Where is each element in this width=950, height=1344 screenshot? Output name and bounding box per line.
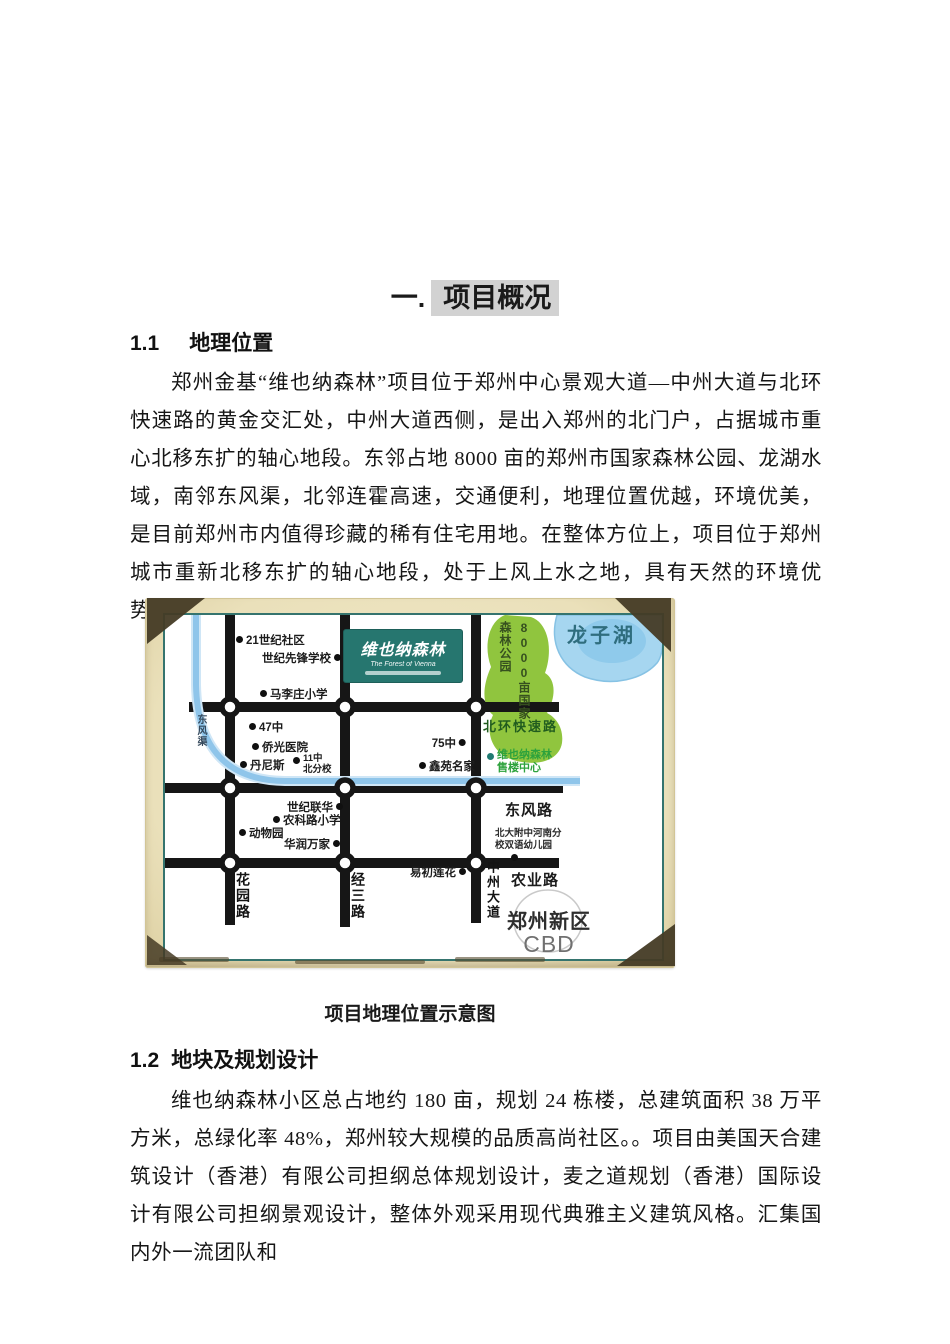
sales-center-label: 维也纳森林 售楼中心 bbox=[497, 749, 552, 774]
marker-dot-icon bbox=[236, 636, 243, 643]
marker-label: 校双语幼儿园 bbox=[495, 840, 562, 852]
marker-label: 世纪先锋学校 bbox=[262, 650, 331, 666]
marker-dot-icon bbox=[511, 854, 518, 861]
marker-label: 丹尼斯 bbox=[250, 757, 285, 773]
marker-dot-icon bbox=[240, 761, 247, 768]
project-logo-name: 维也纳森林 bbox=[344, 636, 462, 660]
section-title: 地理位置 bbox=[189, 332, 273, 355]
marker-dot-icon bbox=[249, 723, 256, 730]
cbd-label: 郑州新区 CBD bbox=[499, 905, 599, 954]
marker-label: 47中 bbox=[259, 719, 283, 735]
marker-dot-icon bbox=[419, 762, 426, 769]
map-marker: 47中 bbox=[249, 719, 283, 735]
marker-label: 11中 北分校 bbox=[303, 753, 332, 775]
project-logo-banner: 维也纳森林 The Forest of Vienna bbox=[344, 630, 462, 682]
dongfeng-road-label: 东风路 bbox=[505, 799, 553, 820]
chapter-number: 一. bbox=[391, 283, 426, 313]
map-marker: 世纪先锋学校 bbox=[262, 650, 341, 666]
map-marker: 75中 bbox=[432, 735, 466, 751]
marker-dot-icon bbox=[334, 654, 341, 661]
marker-label: 21世纪社区 bbox=[246, 632, 305, 648]
section-heading-1-2: 1.2地块及规划设计 bbox=[130, 1044, 318, 1074]
marker-dot-icon bbox=[239, 829, 246, 836]
paragraph-location: 郑州金基“维也纳森林”项目位于郑州中心景观大道—中州大道与北环快速路的黄金交汇处… bbox=[130, 364, 822, 630]
map-marker: 世纪联华 bbox=[287, 799, 343, 815]
logo-decoration bbox=[365, 671, 441, 675]
marker-label: 世纪联华 bbox=[287, 799, 333, 815]
document-page: 一.项目概况 1.1地理位置 郑州金基“维也纳森林”项目位于郑州中心景观大道—中… bbox=[0, 0, 950, 1344]
marker-label: 易初莲花 bbox=[410, 864, 456, 880]
section-title: 地块及规划设计 bbox=[171, 1049, 318, 1072]
forest-park-label: 8000亩国家 森林公园 bbox=[497, 621, 533, 720]
marker-dot-icon bbox=[260, 690, 267, 697]
marker-dot-icon bbox=[336, 803, 343, 810]
sales-center-marker: 维也纳森林 售楼中心 bbox=[487, 749, 552, 774]
map-marker: 华润万家 bbox=[284, 836, 340, 852]
north-ring-road-label: 北环快速路 bbox=[483, 716, 558, 735]
nongye-road-label: 农业路 bbox=[511, 869, 559, 890]
map-marker: 21世纪社区 bbox=[236, 632, 305, 648]
marker-dot-icon bbox=[252, 743, 259, 750]
map-marker: 易初莲花 bbox=[410, 864, 466, 880]
marker-dot-icon bbox=[459, 739, 466, 746]
chapter-title: 一.项目概况 bbox=[0, 276, 950, 315]
marker-label: 75中 bbox=[432, 735, 456, 751]
figure-caption: 项目地理位置示意图 bbox=[145, 999, 675, 1026]
section-number: 1.1 bbox=[130, 332, 159, 356]
paragraph-planning: 维也纳森林小区总占地约 180 亩，规划 24 栋楼，总建筑面积 38 万平方米… bbox=[130, 1082, 822, 1272]
marker-label: 马李庄小学 bbox=[270, 686, 328, 702]
kindergarten-marker: 北大附中河南分 校双语幼儿园 bbox=[495, 828, 562, 851]
lake-label: 龙子湖 bbox=[567, 619, 636, 648]
marker-label: 北大附中河南分 bbox=[495, 828, 562, 840]
map-marker: 丹尼斯 bbox=[240, 757, 285, 773]
section-number: 1.2 bbox=[130, 1049, 159, 1073]
forest-label-col2: 森林公园 bbox=[497, 621, 514, 720]
map-photo-frame: 维也纳森林 The Forest of Vienna 龙子湖 8000亩国家 森… bbox=[145, 598, 675, 968]
marker-dot-icon bbox=[293, 757, 300, 764]
marker-label: 华润万家 bbox=[284, 836, 330, 852]
marker-label: 鑫苑名家 bbox=[429, 758, 475, 774]
dongfeng-canal-label: 东风渠 bbox=[193, 714, 208, 747]
marker-dot-icon bbox=[459, 868, 466, 875]
section-heading-1-1: 1.1地理位置 bbox=[130, 327, 273, 357]
project-logo-subtitle: The Forest of Vienna bbox=[344, 661, 462, 668]
huayuan-road-label: 花园路 bbox=[233, 872, 253, 920]
frame-wear bbox=[295, 960, 425, 964]
map-marker: 鑫苑名家 bbox=[419, 758, 475, 774]
jingsan-road-label: 经三路 bbox=[348, 872, 368, 920]
forest-label-col1: 8000亩国家 bbox=[516, 621, 533, 720]
location-map: 维也纳森林 The Forest of Vienna 龙子湖 8000亩国家 森… bbox=[163, 613, 664, 961]
map-marker: 11中 北分校 bbox=[293, 753, 332, 775]
map-marker: 动物园 bbox=[239, 825, 284, 841]
marker-dot-icon bbox=[487, 753, 494, 760]
marker-dot-icon bbox=[273, 816, 280, 823]
map-marker: 马李庄小学 bbox=[260, 686, 328, 702]
chapter-title-highlight: 项目概况 bbox=[431, 280, 559, 316]
marker-dot-icon bbox=[333, 840, 340, 847]
marker-label: 动物园 bbox=[249, 825, 284, 841]
frame-wear bbox=[455, 957, 545, 962]
